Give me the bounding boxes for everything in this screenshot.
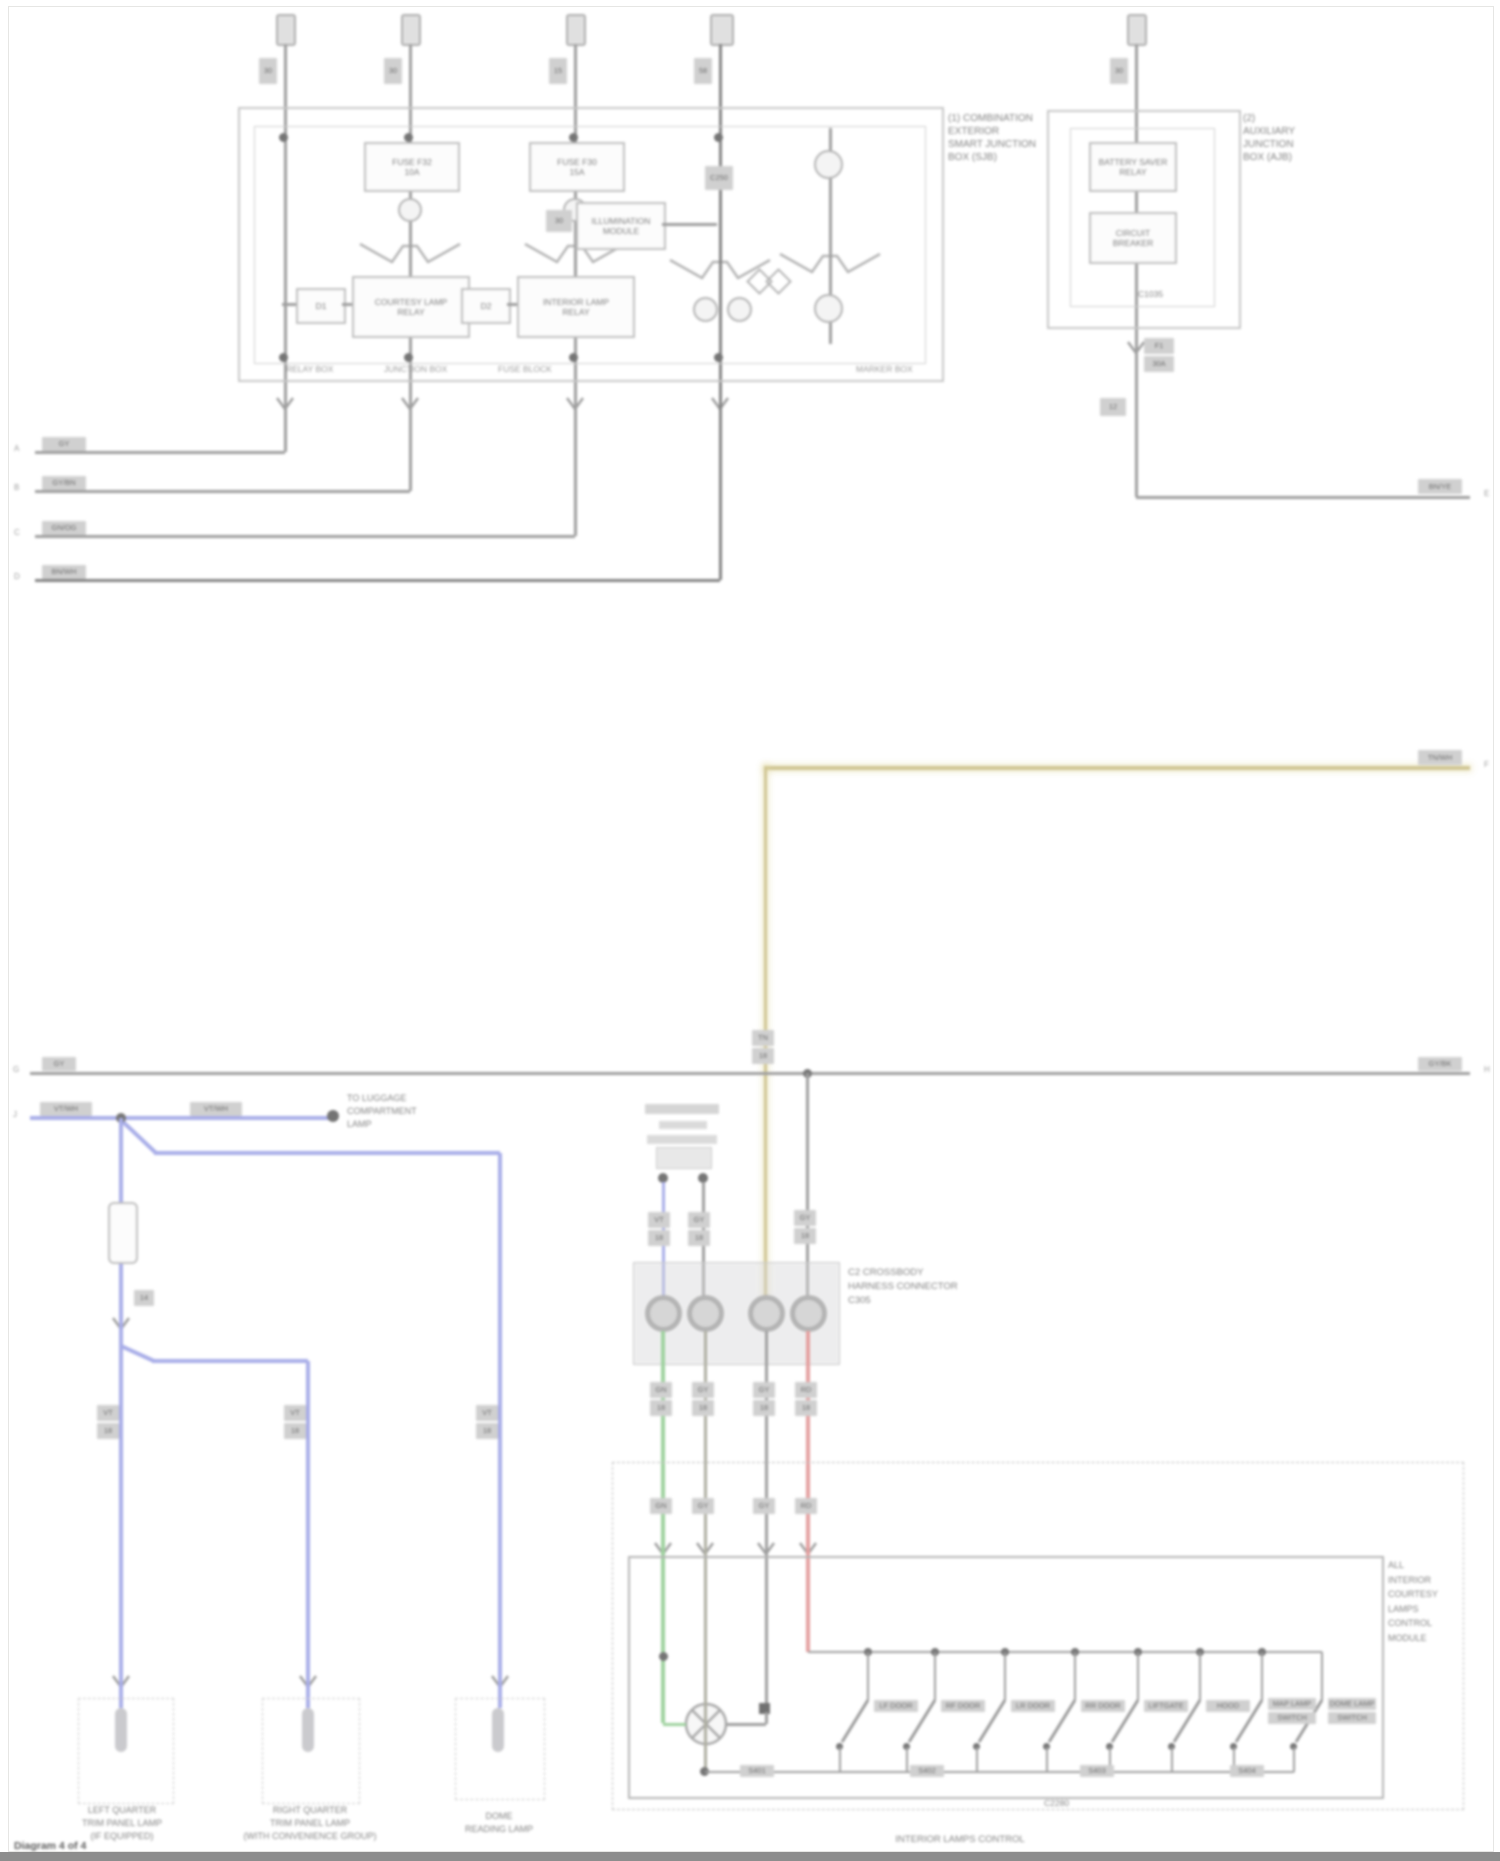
- wire-endpoint-pin: H: [1484, 1065, 1490, 1074]
- battery-saver-relay: BATTERY SAVERRELAY: [1089, 142, 1177, 192]
- wire-code-tag: GY: [42, 1057, 76, 1071]
- switch-drop: [934, 1652, 936, 1700]
- battery-feed-terminal-3: [566, 14, 586, 46]
- switch-drop: [1261, 1652, 1263, 1700]
- connector-cavity: [687, 1295, 724, 1332]
- wire-code-tag: VT/WH: [40, 1102, 92, 1116]
- wiring-diagram-page: 30 30 15 58 30 (1) COMBINATIONEXTERIOR S…: [0, 0, 1500, 1861]
- connector-cavity: [748, 1295, 785, 1332]
- battery-feed-terminal-2: [401, 14, 421, 46]
- switch-drop: [1199, 1652, 1201, 1700]
- switch-ground-stub: [1293, 1747, 1295, 1772]
- switch-drop: [1137, 1652, 1139, 1700]
- wire-tan-horizontal: [765, 766, 1470, 770]
- wire-endpoint-pin: G: [13, 1065, 19, 1074]
- switch-label: DOME LAMP: [1328, 1698, 1376, 1710]
- module-side-label: ALLINTERIOR COURTESYLAMPS CONTROLMODULE: [1388, 1558, 1458, 1645]
- junction-dot: [404, 353, 413, 362]
- switch-label: SWITCH: [1268, 1712, 1316, 1724]
- feed-code-tag: 30: [384, 58, 402, 84]
- switch-ground-stub: [976, 1747, 978, 1772]
- switch-label: LIFTGATE: [1144, 1700, 1188, 1712]
- fuse-f32: FUSE F3210A: [364, 142, 460, 192]
- wire-code-tag: VT/WH: [190, 1102, 242, 1116]
- junction-dot: [569, 353, 578, 362]
- junction-dot: [659, 1652, 668, 1661]
- switch-label: LF DOOR: [874, 1700, 918, 1712]
- wire-endpoint-pin: E: [1484, 489, 1489, 498]
- wire-exit-b: [35, 490, 410, 493]
- junction-dot: [279, 133, 288, 142]
- switch-label: LR DOOR: [1011, 1700, 1055, 1712]
- wire-blue-main: [30, 1116, 333, 1120]
- wire-blue-lamp2-h: [152, 1359, 308, 1363]
- wire-code-tag: 18: [795, 1400, 817, 1416]
- wire-blue-dome-v: [498, 1153, 502, 1708]
- bulb-icon: [302, 1708, 314, 1752]
- switch-label: SWITCH: [1328, 1712, 1376, 1724]
- sjb-section-label: RELAY BOX: [286, 363, 333, 376]
- wire-code-tag: 18: [650, 1400, 672, 1416]
- wire-code-tag: F1: [1144, 338, 1174, 354]
- wire-code-tag: 12: [1100, 398, 1126, 416]
- switch-drop: [1321, 1652, 1323, 1700]
- interior-lamp-relay: INTERIOR LAMPRELAY: [517, 276, 635, 338]
- wire-link: [342, 303, 352, 306]
- wire-code-tag: 30A: [1144, 356, 1174, 372]
- ajb-connector-label: C1035: [1138, 288, 1163, 301]
- sjb-section-label: JUNCTION BOX: [384, 363, 447, 376]
- wire-endpoint-pin: C: [14, 528, 20, 537]
- wire-lamp-right-lead: [727, 1723, 766, 1726]
- wire-code-tag: 18: [476, 1423, 498, 1439]
- inline-component-bar: [647, 1135, 717, 1144]
- coil-symbol: [398, 198, 422, 222]
- wire-code-tag: 18: [753, 1400, 775, 1416]
- illumination-module: ILLUMINATIONMODULE: [576, 202, 666, 250]
- splice-dot: [327, 1110, 339, 1122]
- wire-link: [507, 303, 517, 306]
- switch-label: RF DOOR: [941, 1700, 985, 1712]
- junction-dot: [279, 353, 288, 362]
- junction-dot: [714, 133, 723, 142]
- wire-code-tag: 18: [97, 1423, 119, 1439]
- lamp-label: RIGHT QUARTERTRIM PANEL LAMP(WITH CONVEN…: [232, 1804, 388, 1843]
- switch-ground-stub: [906, 1747, 908, 1772]
- splice-tag: S401: [740, 1765, 774, 1777]
- wire-code-tag: BN/WH: [42, 565, 86, 579]
- wire-code-tag: BN/YE: [1418, 479, 1462, 494]
- battery-feed-terminal-4: [710, 14, 734, 46]
- switch-label: MAP LAMP: [1268, 1698, 1316, 1710]
- wire-code-tag: VT: [284, 1405, 306, 1421]
- sjb-section-label: FUSE BLOCK: [498, 363, 552, 376]
- lamp-label: DOMEREADING LAMP: [444, 1810, 554, 1836]
- wire-code-tag: 18: [688, 1230, 710, 1246]
- inline-connector: [108, 1202, 138, 1264]
- wire-endpoint-pin: A: [14, 444, 19, 453]
- wire-code-tag: VT: [97, 1405, 119, 1421]
- module-connector-label: C2280: [1044, 1797, 1069, 1810]
- feed-code-tag: 30: [1110, 58, 1128, 84]
- inline-component-body: [656, 1147, 712, 1169]
- feed-code-tag: 15: [549, 58, 567, 84]
- wire-code-tag: VT: [476, 1405, 498, 1421]
- wire-link: [662, 223, 717, 226]
- watermark: Diagram 4 of 4: [14, 1840, 86, 1852]
- switch-ground-stub: [1046, 1747, 1048, 1772]
- switch-bus-bottom: [705, 1771, 1294, 1774]
- splice-tag: S402: [910, 1765, 944, 1777]
- gauge-symbol: [814, 150, 843, 179]
- wire-blue-dome-h: [154, 1151, 500, 1155]
- wire-code-tag: GY: [692, 1382, 714, 1398]
- wire-code-tag: GY/BK: [1418, 1057, 1462, 1071]
- feed-code-tag: 58: [694, 58, 712, 84]
- wire-code-tag: 14: [134, 1290, 154, 1306]
- wire-code-tag: VT: [648, 1212, 670, 1228]
- circuit-breaker: CIRCUITBREAKER: [1089, 212, 1177, 264]
- wire-code-tag: 18: [648, 1230, 670, 1246]
- crossbody-connector-label: C2 CROSSBODYHARNESS CONNECTORC305: [848, 1266, 978, 1308]
- wire-endpoint-pin: B: [14, 483, 19, 492]
- wire-code-tag: RD: [795, 1382, 817, 1398]
- splice-destination-label: TO LUGGAGECOMPARTMENTLAMP: [347, 1092, 457, 1131]
- wire-code-tag: GN/OG: [42, 521, 86, 535]
- inline-component-bar: [645, 1104, 719, 1114]
- wire-exit-c: [35, 535, 575, 538]
- wire-endpoint-pin: J: [13, 1110, 17, 1119]
- diode-block: D2: [461, 288, 511, 324]
- bulb-icon: [115, 1708, 127, 1752]
- wire-link: [282, 303, 296, 306]
- wiring-diagram: 30 30 15 58 30 (1) COMBINATIONEXTERIOR S…: [0, 0, 1500, 1861]
- switch-drop: [867, 1652, 869, 1700]
- wire-code-tag: GY: [753, 1382, 775, 1398]
- wire-blue-lamp2-v: [306, 1361, 310, 1708]
- wire-exit-d: [35, 579, 720, 583]
- wire-code-tag: GY: [794, 1210, 816, 1226]
- wire-code-tag: GY/BN: [42, 476, 86, 490]
- ajb-label: (2)AUXILIARY JUNCTIONBOX (AJB): [1243, 112, 1353, 164]
- lamp-label: LEFT QUARTERTRIM PANEL LAMP(IF EQUIPPED): [52, 1804, 192, 1843]
- sjb-section-label: MARKER BOX: [856, 363, 913, 376]
- wire-gray-run: [30, 1072, 1470, 1075]
- wire-code-tag: 18: [692, 1400, 714, 1416]
- battery-feed-terminal-1: [276, 14, 296, 46]
- wire-code-tag: 30: [546, 210, 572, 232]
- wire-ajb-out: [1136, 496, 1470, 499]
- wire-code-tag: 18: [794, 1228, 816, 1244]
- diode-block: D1: [296, 288, 346, 324]
- wire-code-tag: 18: [752, 1048, 774, 1064]
- switch-label: HOOD: [1206, 1700, 1250, 1712]
- junction-dot: [404, 133, 413, 142]
- switch-ground-stub: [1171, 1747, 1173, 1772]
- gauge-symbol: [693, 297, 718, 322]
- connector-tag: C250: [705, 166, 733, 190]
- wire-code-tag: GY: [42, 437, 86, 451]
- splice-tag: S404: [1230, 1765, 1264, 1777]
- switch-bus-top: [808, 1651, 1322, 1654]
- switch-label: RR DOOR: [1081, 1700, 1125, 1712]
- splice-tag: S403: [1080, 1765, 1114, 1777]
- wire-code-tag: TN/WH: [1418, 750, 1462, 765]
- wire-code-tag: GN: [650, 1382, 672, 1398]
- wire-lamp-left-lead: [663, 1723, 686, 1726]
- battery-feed-terminal-5: [1127, 14, 1147, 46]
- courtesy-lamp-relay: COURTESY LAMPRELAY: [352, 276, 470, 338]
- wire-code-tag: TN: [752, 1030, 774, 1046]
- switch-ground-stub: [839, 1747, 841, 1772]
- gauge-symbol: [727, 297, 752, 322]
- switch-drop: [1004, 1652, 1006, 1700]
- module-inner-box: [628, 1556, 1384, 1799]
- bulb-icon: [492, 1708, 504, 1752]
- connector-cavity: [645, 1295, 682, 1332]
- connector-cavity: [790, 1295, 827, 1332]
- wire-lamp-right-stub: [765, 1712, 768, 1724]
- junction-dot: [714, 353, 723, 362]
- fuse-f30: FUSE F3015A: [529, 142, 625, 192]
- module-bottom-label: INTERIOR LAMPS CONTROL: [810, 1833, 1110, 1846]
- inline-component-bar: [659, 1121, 707, 1129]
- wire-endpoint-pin: F: [1484, 760, 1489, 769]
- junction-dot: [569, 133, 578, 142]
- gauge-symbol: [814, 294, 843, 323]
- bottom-edge-bar: [0, 1852, 1500, 1861]
- wire-code-tag: 18: [284, 1423, 306, 1439]
- switch-drop: [1074, 1652, 1076, 1700]
- wire-endpoint-pin: D: [14, 572, 20, 581]
- feed-code-tag: 30: [259, 58, 277, 84]
- wire-code-tag: GY: [688, 1212, 710, 1228]
